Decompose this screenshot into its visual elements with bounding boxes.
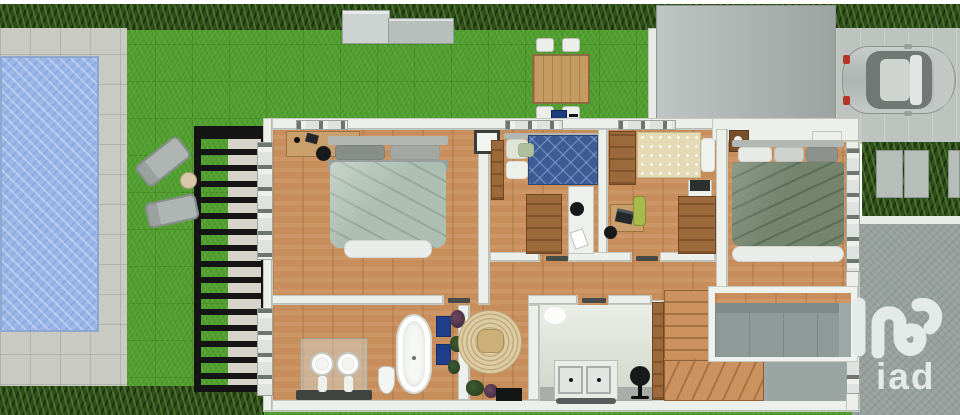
window-beige-top	[618, 120, 676, 130]
duvet	[528, 135, 598, 185]
pillow	[335, 145, 385, 160]
window-master-top	[296, 120, 348, 130]
green-chair	[633, 196, 646, 226]
pouf	[477, 329, 504, 353]
folded-sheet	[344, 240, 432, 258]
black-doormat	[496, 388, 522, 401]
desk-lamp	[294, 137, 300, 143]
fence-panel	[904, 150, 929, 198]
blue-bed	[504, 133, 598, 185]
duvet	[637, 132, 701, 178]
window-bathroom-left	[257, 308, 273, 396]
car-windshield	[910, 55, 922, 105]
bathtub	[396, 314, 432, 394]
car-roof	[880, 59, 910, 101]
desk-chair	[604, 226, 617, 239]
lower-gray-floor	[760, 358, 846, 401]
garage-roof	[656, 5, 836, 120]
wall-blue-east	[598, 129, 608, 262]
void-frame	[708, 286, 858, 362]
wall-laundry-north	[528, 295, 578, 305]
garden-shed	[342, 8, 458, 46]
window-blue-top	[505, 120, 563, 130]
green-bed	[732, 140, 844, 262]
duvet	[732, 162, 844, 246]
toilet	[378, 366, 395, 394]
blue-mat	[436, 316, 451, 337]
washing-machine	[558, 366, 583, 394]
garden-chair	[562, 38, 580, 52]
door-threshold	[546, 256, 568, 261]
wall-nook-laundry	[528, 305, 540, 401]
fence-panel	[876, 150, 903, 198]
desk-chair	[570, 202, 584, 216]
wall-master-east	[478, 129, 490, 305]
car-mirror	[904, 111, 912, 116]
shed-roof-left	[342, 10, 390, 44]
sofa-back	[715, 303, 851, 313]
appliance-mat	[556, 398, 616, 404]
pillow	[774, 147, 804, 162]
window-master-left	[257, 142, 273, 260]
dryer	[586, 366, 611, 394]
door-threshold	[448, 298, 470, 303]
void-floor-strip	[715, 293, 851, 303]
pedestal-sink	[336, 352, 360, 376]
garden-table	[532, 54, 590, 104]
iad-logo: iad	[848, 290, 960, 400]
sink-pedestal	[318, 376, 327, 392]
pedestal-sink	[310, 352, 334, 376]
wardrobe	[609, 131, 636, 185]
pillow	[518, 143, 534, 157]
master-bed	[328, 136, 448, 260]
folded-sheet	[732, 246, 844, 262]
shed-roof-right	[388, 18, 454, 44]
wall-beige-east	[716, 129, 728, 289]
swimming-pool	[0, 56, 99, 332]
headboard	[328, 136, 448, 145]
door-threshold	[582, 298, 606, 303]
car-taillight	[843, 96, 850, 105]
car-hood	[934, 52, 954, 108]
office-chair-base	[631, 396, 649, 399]
wardrobe	[526, 194, 562, 254]
grill-handle	[569, 114, 578, 117]
pillow	[701, 138, 715, 172]
car-taillight	[843, 55, 850, 64]
side-table	[180, 172, 197, 189]
window-bedroom-right	[846, 148, 860, 272]
wall-art-small	[690, 180, 710, 191]
beige-bed	[637, 132, 717, 178]
headboard	[732, 140, 844, 147]
office-chair	[630, 366, 650, 386]
garden-chair	[536, 38, 554, 52]
car-mirror	[904, 44, 912, 49]
curb	[846, 216, 960, 224]
pillow	[506, 161, 528, 179]
wall-lamp-glow	[544, 307, 566, 324]
sink-pedestal	[344, 376, 353, 392]
iad-logo-text: iad	[876, 358, 935, 395]
plant	[448, 360, 460, 374]
iad-swirl-icon	[850, 292, 944, 362]
parked-car	[842, 46, 956, 114]
floor-plan-render: iad	[0, 0, 960, 415]
fence-panel	[948, 150, 960, 198]
pillow	[806, 147, 838, 162]
door-threshold	[636, 256, 658, 261]
wardrobe-panel	[652, 302, 664, 400]
wall-master-south	[272, 295, 444, 305]
vanity-base	[296, 390, 372, 400]
staircase-winders	[664, 360, 764, 401]
plant	[466, 380, 484, 396]
wall-laundry-north	[608, 295, 652, 305]
staircase-flight	[664, 290, 712, 360]
duvet	[330, 162, 446, 248]
pillow	[390, 145, 440, 160]
pillow	[738, 147, 772, 162]
wardrobe	[491, 140, 504, 200]
wardrobe	[678, 196, 716, 254]
